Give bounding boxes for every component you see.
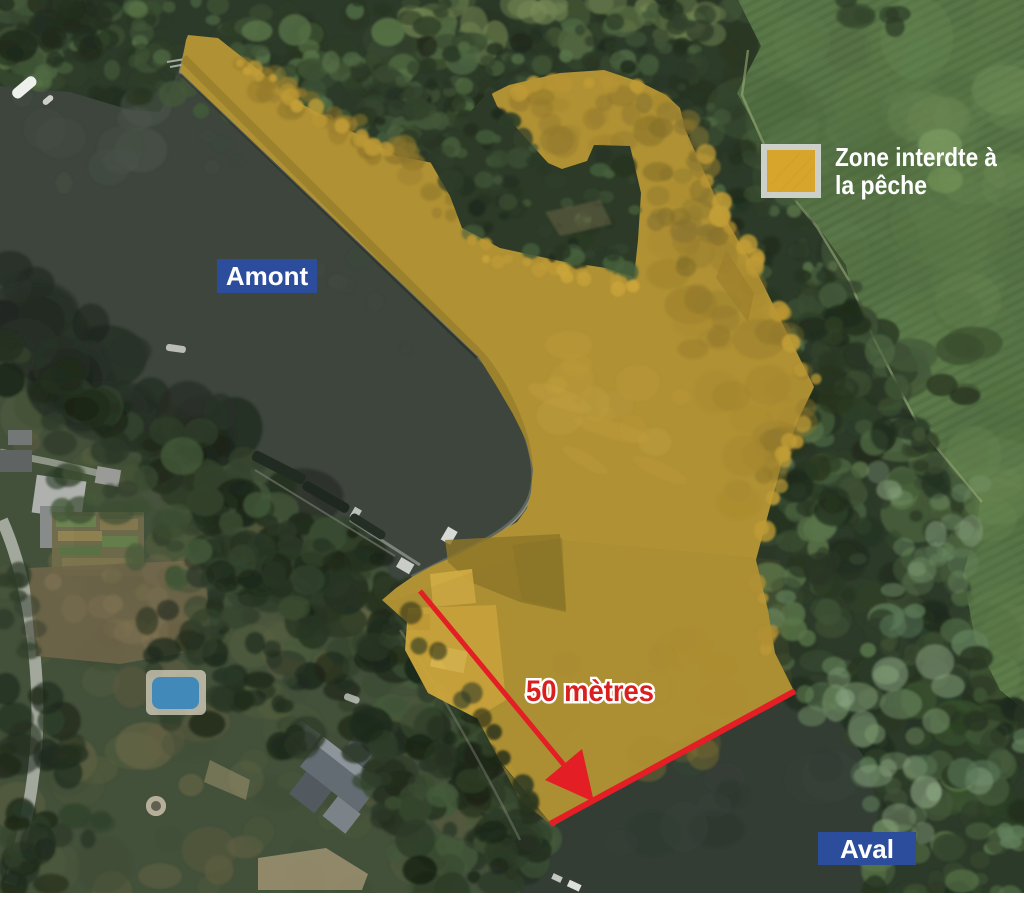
svg-text:la pêche: la pêche	[835, 170, 927, 200]
svg-text:Zone interdte à: Zone interdte à	[835, 142, 997, 172]
svg-text:Amont: Amont	[226, 261, 309, 291]
svg-text:50 mètres: 50 mètres	[526, 675, 654, 708]
svg-text:Aval: Aval	[840, 834, 894, 864]
